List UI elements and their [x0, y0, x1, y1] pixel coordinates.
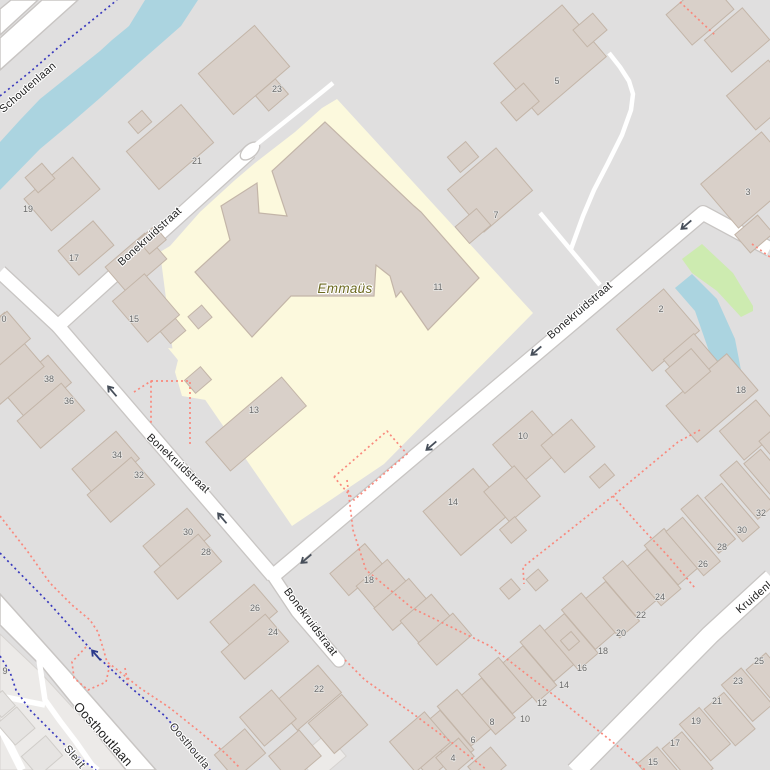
svg-text:9: 9 [2, 666, 7, 676]
svg-text:8: 8 [489, 717, 494, 727]
svg-text:3: 3 [745, 187, 750, 197]
svg-text:0: 0 [1, 314, 6, 324]
svg-text:26: 26 [250, 603, 260, 613]
svg-text:17: 17 [69, 253, 79, 263]
svg-text:30: 30 [183, 527, 193, 537]
svg-text:18: 18 [736, 385, 746, 395]
svg-text:38: 38 [44, 374, 54, 384]
svg-text:36: 36 [64, 396, 74, 406]
svg-text:23: 23 [733, 676, 743, 686]
svg-text:30: 30 [737, 525, 747, 535]
svg-text:12: 12 [537, 698, 547, 708]
svg-text:5: 5 [554, 76, 559, 86]
svg-text:19: 19 [23, 204, 33, 214]
svg-text:21: 21 [192, 156, 202, 166]
svg-text:28: 28 [717, 542, 727, 552]
svg-text:Emmaüs: Emmaüs [317, 281, 372, 296]
svg-text:24: 24 [268, 627, 278, 637]
svg-text:21: 21 [712, 696, 722, 706]
svg-text:10: 10 [518, 431, 528, 441]
svg-text:15: 15 [129, 314, 139, 324]
svg-text:32: 32 [756, 508, 766, 518]
svg-text:18: 18 [364, 575, 374, 585]
svg-text:23: 23 [272, 84, 282, 94]
svg-text:16: 16 [577, 663, 587, 673]
svg-text:34: 34 [112, 450, 122, 460]
svg-text:13: 13 [249, 405, 259, 415]
svg-text:19: 19 [691, 716, 701, 726]
svg-text:6: 6 [470, 735, 475, 745]
svg-text:14: 14 [559, 680, 569, 690]
svg-text:7: 7 [493, 210, 498, 220]
svg-text:22: 22 [314, 684, 324, 694]
svg-text:22: 22 [636, 610, 646, 620]
svg-text:17: 17 [670, 738, 680, 748]
svg-text:11: 11 [433, 282, 442, 292]
svg-text:4: 4 [450, 753, 455, 763]
svg-text:10: 10 [520, 714, 530, 724]
svg-text:15: 15 [648, 757, 658, 767]
svg-text:14: 14 [448, 497, 458, 507]
svg-text:2: 2 [658, 304, 663, 314]
svg-text:32: 32 [134, 470, 144, 480]
svg-text:20: 20 [616, 628, 626, 638]
svg-text:28: 28 [201, 547, 211, 557]
svg-text:24: 24 [655, 592, 665, 602]
svg-text:18: 18 [598, 646, 608, 656]
svg-text:25: 25 [754, 656, 764, 666]
svg-text:26: 26 [698, 559, 708, 569]
